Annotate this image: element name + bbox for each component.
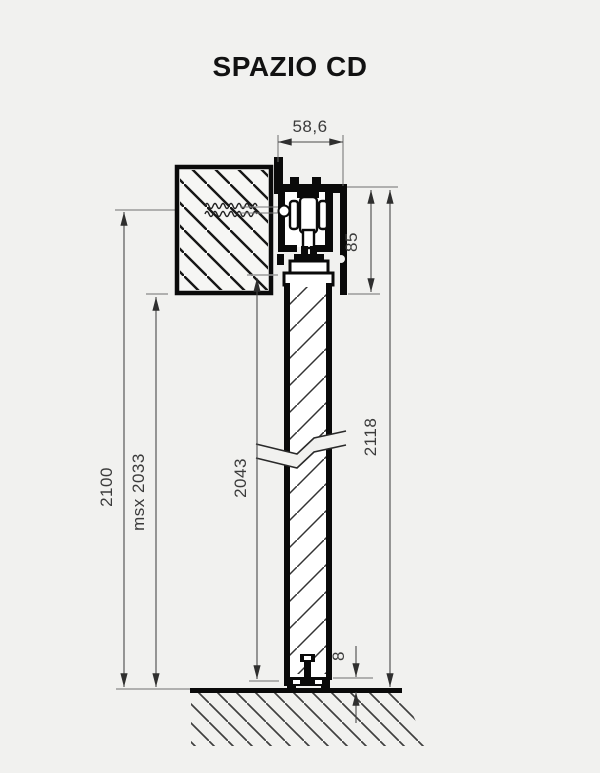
fascia-clip-hole bbox=[337, 255, 345, 263]
spazio-cd-section-drawing: SPAZIO CD bbox=[0, 0, 600, 773]
roller-flange-right bbox=[319, 201, 327, 229]
screw-head bbox=[279, 206, 290, 217]
roller-wheel bbox=[300, 197, 317, 233]
dim-header-height-label: 85 bbox=[342, 232, 361, 252]
technical-drawing-page: SPAZIO CD bbox=[0, 0, 600, 773]
page-title: SPAZIO CD bbox=[213, 51, 368, 82]
dim-total-height-label: 2118 bbox=[361, 418, 380, 457]
floor-line bbox=[190, 688, 402, 693]
door-panel bbox=[284, 283, 332, 680]
hanger-bolt bbox=[303, 230, 314, 248]
dim-floor-gap-label: 8 bbox=[329, 651, 348, 661]
wall-section bbox=[177, 167, 271, 293]
dim-max-passage-height-label: msx 2033 bbox=[129, 453, 148, 531]
dim-install-height-label: 2100 bbox=[97, 467, 116, 507]
dim-door-height-label: 2043 bbox=[231, 458, 250, 498]
ground-hatch bbox=[191, 693, 427, 746]
dim-track-width-label: 58,6 bbox=[292, 117, 327, 136]
roller-flange-left bbox=[290, 201, 298, 229]
